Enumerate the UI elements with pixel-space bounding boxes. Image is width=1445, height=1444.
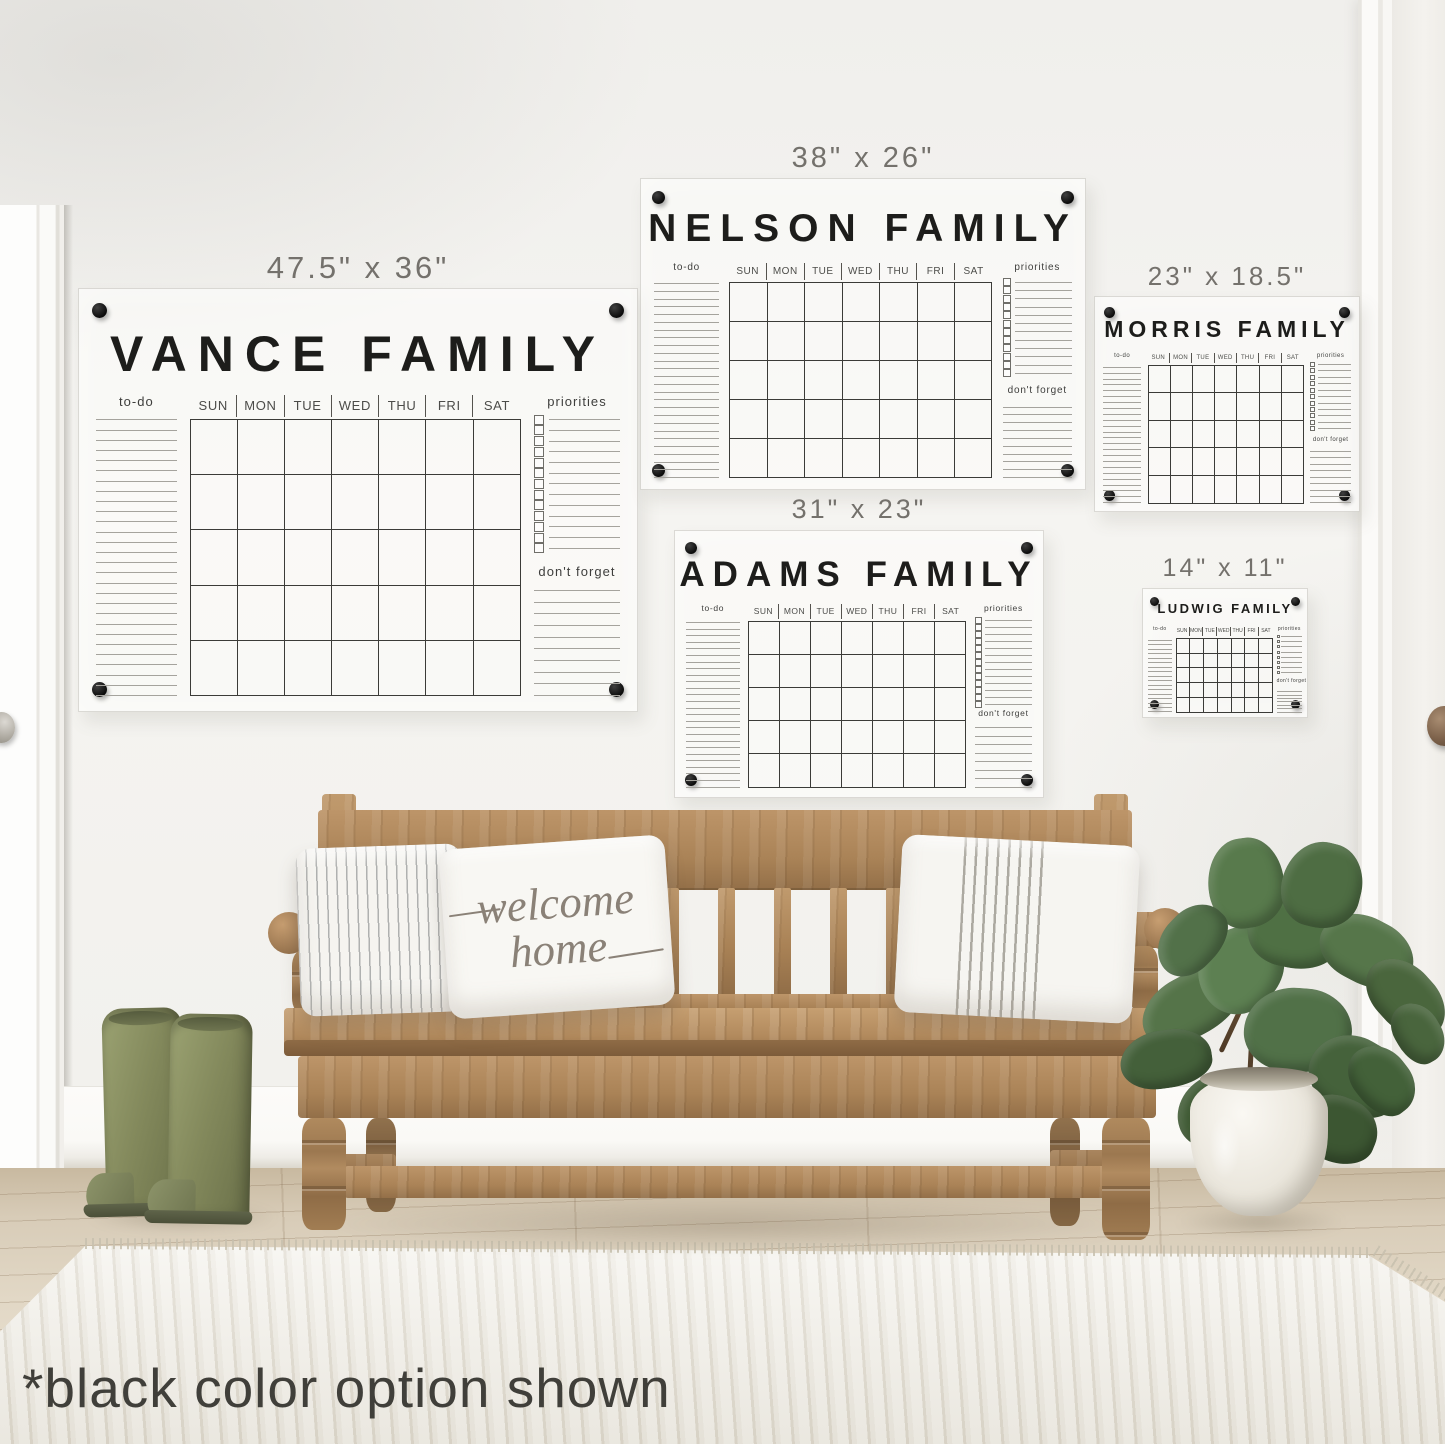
grid-cell [935,655,966,688]
board-body: to-do SUNMONTUEWEDTHUFRISAT priorities d… [686,604,1032,788]
grid-cell [904,721,935,754]
checkbox-line [1015,282,1072,283]
ruled-line [1103,449,1141,450]
day-header-label: MON [1170,353,1192,363]
grid-cell [955,361,992,400]
checkbox-line [1015,323,1072,324]
checkbox-line [985,641,1032,642]
left-door-seam [64,205,73,1171]
checkbox-line [549,419,620,420]
grid-cell [238,530,285,585]
board-title: MORRIS FAMILY [1095,316,1359,343]
checkbox-row [1003,361,1072,369]
grid-cell [191,530,238,585]
ruled-line [654,291,719,292]
calendar-board-adams: 31" x 23" ADAMS FAMILY to-do SUNMONTUEWE… [674,530,1044,798]
grid-cell [811,754,842,787]
pillow-script-line2: home [508,924,608,977]
ruled-line [654,353,719,354]
grid-cell [1232,668,1246,683]
ruled-line [1148,649,1172,650]
ruled-line [686,714,740,715]
grid-cell [1245,698,1259,713]
checkbox-line [1015,331,1072,332]
grid-cell [1171,393,1193,421]
baseboard [64,1086,1360,1170]
checkbox-line [1281,657,1302,658]
grid-cell [880,361,917,400]
ruled-line [96,419,177,420]
checkbox [975,631,982,638]
day-header-label: SAT [1259,627,1273,636]
priorities-checklist [1277,635,1302,674]
grid-cell [1237,366,1259,394]
ruled-line [1277,705,1302,706]
grid-cell [780,655,811,688]
checkbox-line [985,627,1032,628]
checkbox [1003,328,1011,336]
ruled-line [686,635,740,636]
day-header-label: SUN [748,604,779,618]
ruled-line [96,644,177,645]
grid-cell [1215,448,1237,476]
checkbox-row [975,701,1032,708]
grid-cell [1190,639,1204,654]
todo-lines [1103,362,1141,504]
checkbox [534,479,544,489]
ruled-line [654,314,719,315]
size-label: 23" x 18.5" [1095,263,1359,289]
grid-cell [730,400,767,439]
checkbox [534,447,544,457]
grid-cell [332,420,379,475]
grid-cell [880,400,917,439]
ruled-line [534,590,621,591]
ruled-line [1148,698,1172,699]
checkbox-row [1277,651,1302,654]
day-header-label: TUE [1192,353,1214,363]
checkbox-row [975,666,1032,673]
grid-cell [842,622,873,655]
checkbox-row [1310,368,1351,373]
day-header-label: WED [842,604,873,618]
grid-cell [1260,448,1282,476]
ruled-line [1003,461,1072,462]
checkbox-row [1277,656,1302,659]
grid-cell [1171,366,1193,394]
script-flourish [608,948,664,959]
ruled-line [96,511,177,512]
grid-cell [1282,393,1304,421]
grid-cell [955,400,992,439]
grid-cell [285,586,332,641]
checkbox [1277,635,1280,638]
ruled-line [1310,464,1351,465]
grid-cell [811,655,842,688]
grid-cell [191,641,238,696]
grid-cell [1259,683,1273,698]
checkbox [975,652,982,659]
checkbox [1277,661,1280,664]
ruled-line [1148,667,1172,668]
checkbox-row [1310,381,1351,386]
checkbox [1310,381,1315,386]
ruled-line [96,440,177,441]
checkbox-row [1310,413,1351,418]
checkbox-row [1310,401,1351,406]
welcome-home-pillow: welcome home [438,834,675,1019]
ruled-line [686,708,740,709]
grid-cell [843,322,880,361]
ruled-line [534,625,621,626]
day-header-label: MON [237,395,284,417]
checkbox-row [534,479,621,489]
grid-cell [749,655,780,688]
grid-cell [843,283,880,322]
pot-shadow [1176,1206,1346,1238]
ruled-line [654,345,719,346]
checkbox-line [1318,422,1351,423]
checkbox-row [534,458,621,468]
checkbox [1310,426,1315,431]
checkbox-row [975,624,1032,631]
grid-cell [1245,683,1259,698]
ruled-line [1103,367,1141,368]
grid-cell [1149,421,1171,449]
checkbox-line [985,634,1032,635]
priorities-label: priorities [1310,353,1351,359]
grid-cell [843,439,880,478]
ruled-line [1103,502,1141,503]
checkbox-line [1318,396,1351,397]
ruled-line [1310,496,1351,497]
checkbox-row [975,659,1032,666]
day-header-label: TUE [1203,627,1217,636]
checkbox-row [975,680,1032,687]
ruled-line [1103,496,1141,497]
day-header-label: SUN [1176,627,1190,636]
grid-cell [1171,476,1193,504]
ruled-line [1103,485,1141,486]
checkbox [1310,407,1315,412]
checkbox-line [1318,415,1351,416]
checkbox-line [549,548,620,549]
checkbox-row [1003,369,1072,377]
day-header-label: SAT [955,263,993,280]
day-header-label: WED [842,263,880,280]
checkbox [1310,420,1315,425]
ruled-line [654,469,719,470]
grid-cell [1259,668,1273,683]
checkbox [1277,640,1280,643]
day-header-label: THU [1237,353,1259,363]
checkbox-line [549,441,620,442]
checkbox-line [1015,365,1072,366]
dont-forget-lines [975,723,1032,788]
grid-cell [285,475,332,530]
ruled-line [96,685,177,686]
ruled-line [654,438,719,439]
grid-cell [1193,366,1215,394]
ruled-line [1148,671,1172,672]
grid-cell [1190,668,1204,683]
checkbox [1003,286,1011,294]
grid-cell [1218,639,1232,654]
board-title: VANCE FAMILY [79,325,637,383]
checkbox-line [1281,641,1302,642]
dont-forget-lines [1003,402,1072,478]
grid-cell [904,754,935,787]
ruled-line [975,744,1032,745]
grid-cell [880,439,917,478]
checkbox-row [975,652,1032,659]
priorities-label: priorities [975,604,1032,613]
checkbox-row [1277,661,1302,664]
priorities-checklist [975,617,1032,701]
priorities-label: priorities [534,395,621,408]
ruled-line [1103,408,1141,409]
day-header-label: FRI [1245,627,1259,636]
grid-cell [918,439,955,478]
grid-cell [379,475,426,530]
ruled-line [686,694,740,695]
ruled-line [975,787,1032,788]
day-header-row: SUNMONTUEWEDTHUFRISAT [1176,627,1273,639]
checkbox [1277,671,1280,674]
checkbox [1310,413,1315,418]
grid-cell [842,721,873,754]
checkbox [1310,401,1315,406]
grid-cell [379,641,426,696]
grid-cell [426,530,473,585]
grid-cell [1259,639,1273,654]
checkbox-line [1318,383,1351,384]
checkbox [1003,353,1011,361]
ruled-line [534,602,621,603]
ruled-line [96,460,177,461]
grid-cell [1245,654,1259,669]
priorities-checklist [1003,278,1072,377]
grid-cell [842,754,873,787]
grid-cell [332,530,379,585]
checkbox [1310,388,1315,393]
grid-cell [730,283,767,322]
grid-cell [238,641,285,696]
checkbox-row [1003,320,1072,328]
ruled-line [534,648,621,649]
board-title: LUDWIG FAMILY [1143,601,1307,616]
grid-cell [880,283,917,322]
grid-cell [904,688,935,721]
grid-cell [780,622,811,655]
checkbox [534,415,544,425]
ruled-line [686,721,740,722]
ruled-line [1003,422,1072,423]
day-header-label: FRI [1259,353,1281,363]
grid-cell [1193,476,1215,504]
todo-lines [96,415,177,697]
grid-cell [749,622,780,655]
mount-dot [1021,542,1033,554]
checkbox-line [1281,636,1302,637]
ruled-line [686,747,740,748]
checkbox [975,680,982,687]
grid-cell [1149,366,1171,394]
ruled-line [654,392,719,393]
todo-lines [654,278,719,478]
grid-cell [191,420,238,475]
day-header-row: SUNMONTUEWEDTHUFRISAT [190,395,520,420]
checkbox [534,468,544,478]
checkbox-line [1281,672,1302,673]
ruled-line [96,542,177,543]
checkbox-row [1310,388,1351,393]
grid-cell [811,688,842,721]
checkbox [975,673,982,680]
checkbox-line [1015,340,1072,341]
checkbox-line [1281,646,1302,647]
grid-cell [379,530,426,585]
ruled-line [654,431,719,432]
grid-cell [1193,448,1215,476]
grid-cell [1260,421,1282,449]
grid-cell [811,622,842,655]
mount-dot [1061,191,1074,204]
ruled-line [96,562,177,563]
grid-cell [1282,421,1304,449]
grid-cell [1232,698,1246,713]
checkbox [534,511,544,521]
checkbox [1310,375,1315,380]
day-header-label: SAT [935,604,966,618]
grid-cell [935,721,966,754]
grid-cell [1282,366,1304,394]
checkbox-line [1318,403,1351,404]
ruled-line [654,376,719,377]
checkbox [975,624,982,631]
month-grid [729,283,992,478]
rain-boot-right [167,1013,253,1220]
grid-cell [768,361,805,400]
ruled-line [686,622,740,623]
checkbox-row [534,533,621,543]
grid-cell [1204,668,1218,683]
checkbox [1003,336,1011,344]
ruled-line [1003,454,1072,455]
checkbox-row [1310,420,1351,425]
ruled-line [1103,432,1141,433]
day-header-label: THU [1231,627,1245,636]
grid-cell [379,420,426,475]
grid-cell [843,361,880,400]
grid-cell [918,361,955,400]
checkbox-line [1318,364,1351,365]
dont-forget-lines [1277,687,1302,713]
grid-cell [426,475,473,530]
grid-cell [1237,393,1259,421]
checkbox-line [549,462,620,463]
grid-cell [805,400,842,439]
ruled-line [686,773,740,774]
checkbox-line [985,683,1032,684]
day-header-label: THU [873,604,904,618]
mount-dot [92,303,107,318]
checkbox-line [985,676,1032,677]
calendar-board-nelson: 38" x 26" NELSON FAMILY to-do SUNMONTUEW… [640,178,1086,490]
grid-cell [474,586,521,641]
ruled-line [686,701,740,702]
grid-cell [880,322,917,361]
calendar-board-morris: 23" x 18.5" MORRIS FAMILY to-do SUNMONTU… [1094,296,1360,512]
ruled-line [1103,443,1141,444]
checkbox [534,533,544,543]
day-header-label: TUE [285,395,332,417]
grid-cell [1218,698,1232,713]
ruled-line [1103,414,1141,415]
priorities-checklist [1310,362,1351,431]
ruled-line [1148,689,1172,690]
ruled-line [686,662,740,663]
grid-cell [426,420,473,475]
checkbox-line [549,483,620,484]
checkbox-row [1003,344,1072,352]
checkbox-row [1003,353,1072,361]
ruled-line [654,462,719,463]
checkbox [1003,320,1011,328]
ruled-line [96,583,177,584]
checkbox [975,694,982,701]
ruled-line [975,753,1032,754]
grid-cell [730,361,767,400]
day-header-label: FRI [917,263,955,280]
grid-cell [805,361,842,400]
ruled-line [96,450,177,451]
ruled-line [534,637,621,638]
mount-dot [609,303,624,318]
checkbox-line [1318,370,1351,371]
checkbox [1277,651,1280,654]
checkbox-row [975,687,1032,694]
grid-cell [955,439,992,478]
calendar-board-ludwig: 14" x 11" LUDWIG FAMILY to-do SUNMONTUEW… [1142,588,1308,718]
grid-cell [768,400,805,439]
checkbox-line [1015,307,1072,308]
checkbox-row [534,490,621,500]
ruled-line [1003,414,1072,415]
ruled-line [686,787,740,788]
board-body: to-do SUNMONTUEWEDTHUFRISAT priorities d… [96,395,621,697]
checkbox-row [975,631,1032,638]
ruled-line [1148,680,1172,681]
grid-cell [918,322,955,361]
checkbox-row [975,617,1032,624]
grid-cell [805,439,842,478]
grid-cell [1177,683,1191,698]
day-header-label: SAT [1282,353,1304,363]
day-header-label: SUN [190,395,237,417]
ruled-line [686,668,740,669]
checkbox-line [549,494,620,495]
ruled-line [1148,662,1172,663]
month-grid [1148,366,1304,504]
grid-cell [1215,476,1237,504]
checkbox-row [1277,645,1302,648]
ruled-line [96,552,177,553]
checkbox-line [985,690,1032,691]
checkbox-line [985,662,1032,663]
checkbox [1003,311,1011,319]
grid-cell [474,641,521,696]
